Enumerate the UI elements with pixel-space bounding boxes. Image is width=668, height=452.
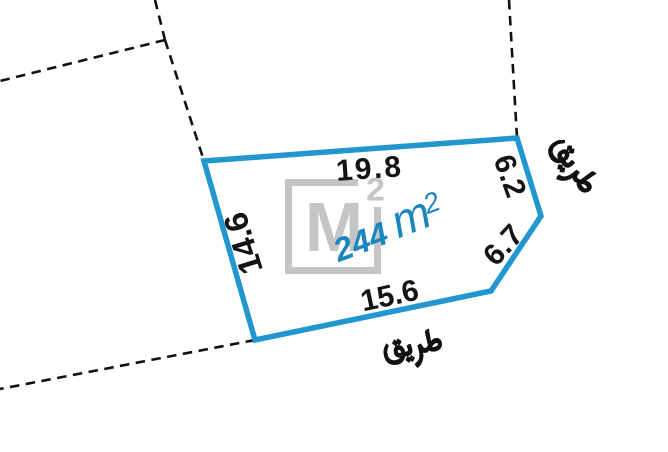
svg-text:19.8: 19.8 xyxy=(335,150,404,188)
